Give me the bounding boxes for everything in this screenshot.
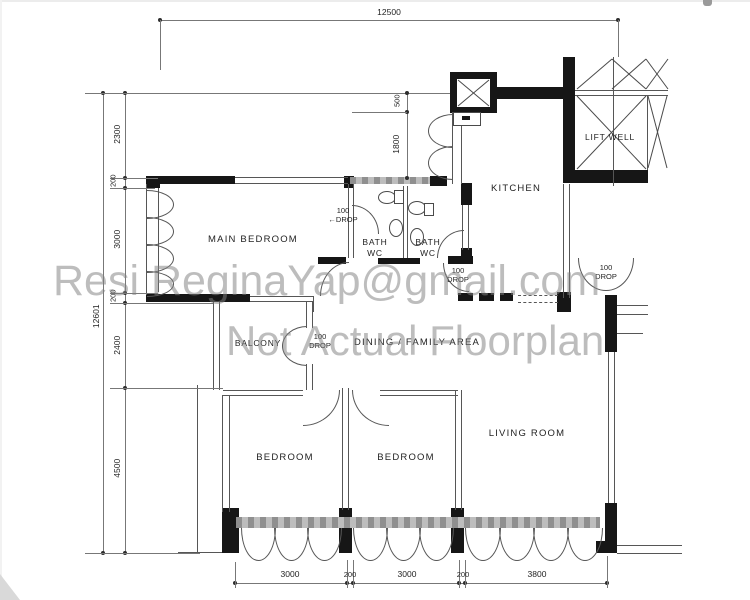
watermark-line2: Not Actual Floorplan <box>226 320 604 362</box>
watermark-line1: Resi ReginaYap@gmail.com <box>53 260 600 303</box>
arrow-left-icon: ← <box>328 215 336 224</box>
room-label-bath1: BATHWC <box>353 237 397 258</box>
floorplan-canvas: 12500 12601 2300 200 3000 200 2400 4500 … <box>0 0 750 600</box>
room-label-kitchen: KITCHEN <box>476 183 556 195</box>
drop-value: 100 <box>600 263 613 272</box>
dim-label-left-5: 4500 <box>113 438 122 498</box>
room-label-living-room: LIVING ROOM <box>467 428 587 440</box>
room-label-bedroom-middle: BEDROOM <box>356 452 456 464</box>
dim-label-bottom-3: 200 <box>449 571 477 579</box>
dim-label-left-4: 2400 <box>113 315 122 375</box>
shaft-cross-icon <box>458 80 489 106</box>
roof-hatch-icon <box>577 59 668 168</box>
drop-label-bedroom: 100 ←DROP <box>324 206 362 225</box>
room-label-bath2-line1: BATH <box>415 237 440 247</box>
dim-label-bottom-0: 3000 <box>265 570 315 579</box>
dim-label-bottom-4: 3800 <box>512 570 562 579</box>
dim-label-bottom-2: 3000 <box>382 570 432 579</box>
drop-text: DROP <box>336 215 358 224</box>
dim-label-top-width: 12500 <box>364 8 414 17</box>
dim-label-bath-height: 1800 <box>392 124 401 164</box>
dim-label-left-1: 200 <box>109 167 117 195</box>
dim-label-bottom-1: 200 <box>336 571 364 579</box>
room-label-lift-well: LIFT WELL <box>570 132 650 143</box>
room-label-bedroom-left: BEDROOM <box>235 452 335 464</box>
dim-label-shaft-offset: 500 <box>393 86 401 116</box>
dim-label-left-0: 2300 <box>113 104 122 164</box>
room-label-bath2: BATHWC <box>406 237 450 258</box>
room-label-main-bedroom: MAIN BEDROOM <box>193 234 313 246</box>
room-label-bath1-line1: BATH <box>362 237 387 247</box>
drop-value: 100 <box>337 206 350 215</box>
